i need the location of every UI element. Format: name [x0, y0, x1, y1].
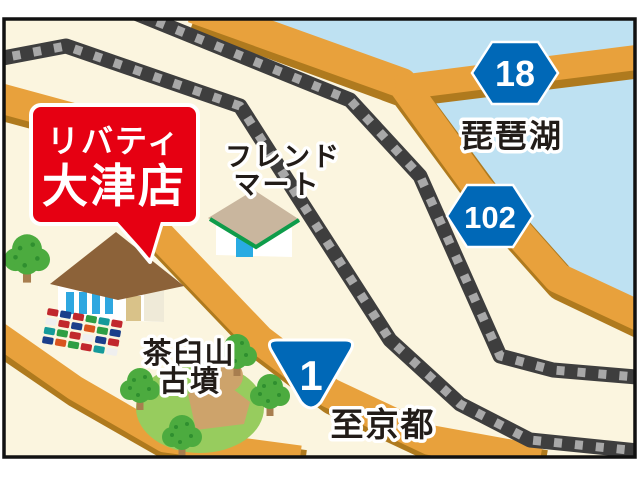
store-door	[126, 296, 141, 321]
friend-mart-label-line1: フレンド	[225, 142, 341, 172]
route-badge-18: 18	[472, 42, 558, 104]
callout-line1: リバティ	[47, 123, 181, 159]
lake-biwa-label: 琵琶湖	[461, 118, 563, 154]
store-window	[66, 292, 74, 314]
kofun-label-line2: 古墳	[159, 365, 221, 398]
store-window	[79, 292, 87, 314]
map-canvas: 18 102 1 琵琶湖 フレンド マート 茶臼山 古墳 至京都 リバティ 大津…	[0, 0, 640, 480]
callout-line2: 大津店	[42, 160, 186, 212]
route-badge-1-number: 1	[299, 352, 322, 399]
route-badge-18-number: 18	[495, 53, 535, 94]
route-badge-102-number: 102	[464, 200, 516, 235]
route-badge-102: 102	[447, 185, 533, 247]
friend-mart-label-line2: マート	[234, 170, 321, 200]
access-map: 18 102 1 琵琶湖 フレンド マート 茶臼山 古墳 至京都 リバティ 大津…	[0, 0, 640, 480]
to-kyoto-label: 至京都	[331, 406, 436, 443]
